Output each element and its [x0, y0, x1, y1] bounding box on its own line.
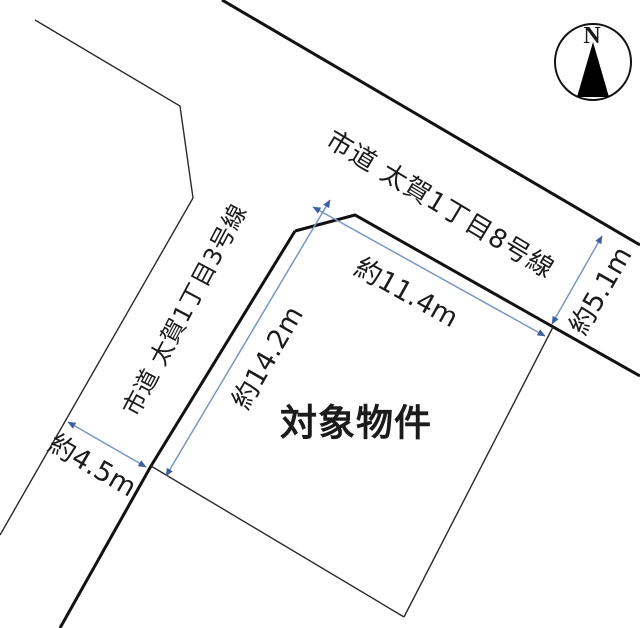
- parcel-right-edge-line: [404, 327, 553, 617]
- road-3-east-edge-parcel-left-line: [60, 231, 295, 628]
- parcel-bottom-edge-line: [151, 466, 404, 617]
- parcel-label: 対象物件: [280, 405, 432, 442]
- compass-north-label: N: [583, 24, 600, 48]
- plot-diagram: N 市道 太賀1丁目8号線 市道 太賀1丁目3号線 対象物件 約11.4m 約1…: [0, 0, 640, 628]
- plot-drawing: [0, 0, 640, 628]
